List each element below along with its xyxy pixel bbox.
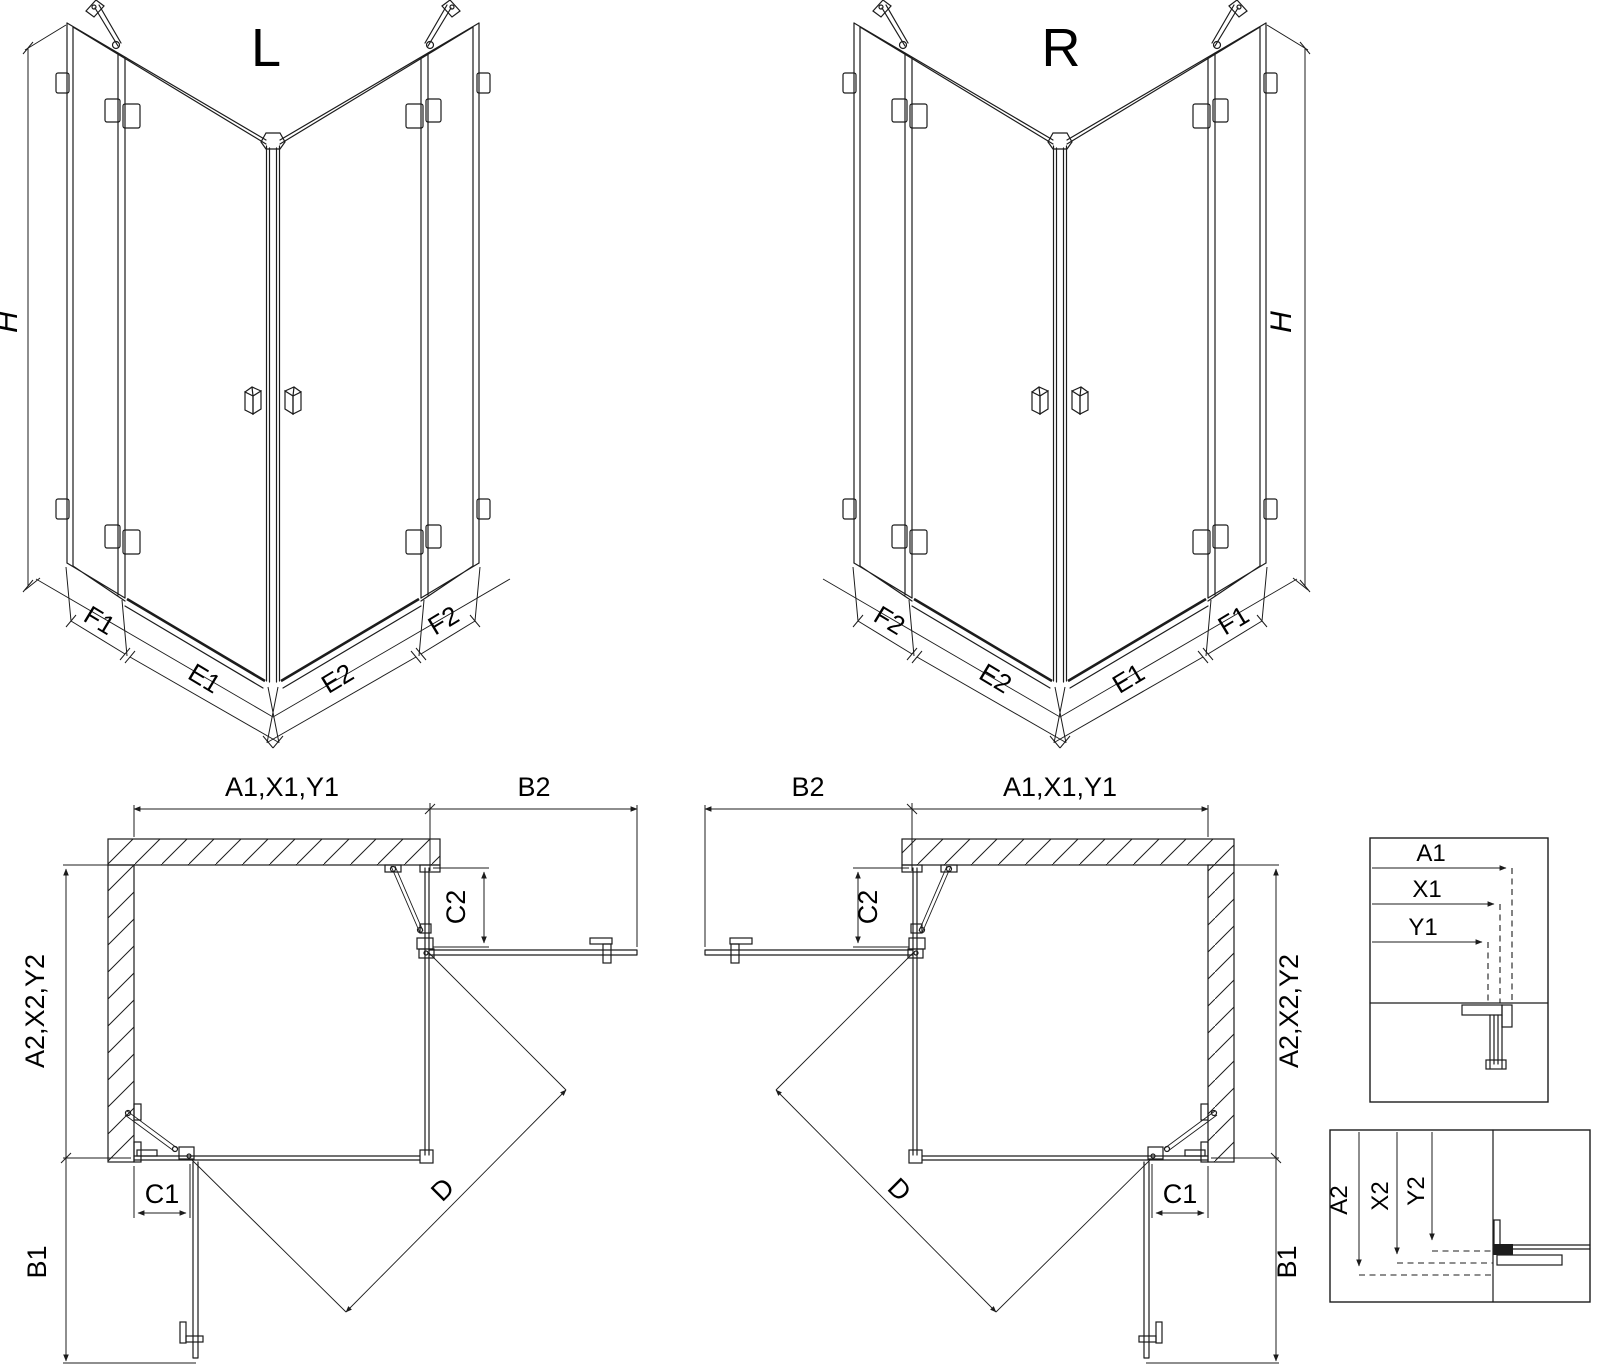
wall-side-left-plan xyxy=(108,865,134,1162)
view-3d-left: L H F1 E1 E2 F2 xyxy=(0,0,510,748)
wall-top-left-plan xyxy=(108,839,440,865)
detail-dim-x2: X2 xyxy=(1367,1181,1394,1210)
view-r-title: R xyxy=(1042,18,1081,78)
plan-r-dim-top: A1,X1,Y1 xyxy=(1003,772,1117,802)
plan-l-dim-side: A2,X2,Y2 xyxy=(20,954,50,1068)
shower-enclosure-diagram: L H F1 E1 E2 F2 R H F2 E2 E1 F1 A1,X1,Y1… xyxy=(0,0,1600,1371)
technical-drawing-page: L H F1 E1 E2 F2 R H F2 E2 E1 F1 A1,X1,Y1… xyxy=(0,0,1600,1371)
view-l-dim-e1: E1 xyxy=(183,657,226,699)
view-r-dim-height: H xyxy=(1265,311,1298,333)
plan-l-dim-c1: C1 xyxy=(145,1179,180,1209)
detail-dim-x1: X1 xyxy=(1412,876,1441,903)
view-3d-right: R H F2 E2 E1 F1 xyxy=(823,0,1310,748)
view-l-dim-f1: F1 xyxy=(79,600,120,641)
plan-r-dim-c2: C2 xyxy=(853,890,883,925)
plan-r-dim-b1: B1 xyxy=(1272,1245,1302,1278)
plan-l-dim-b1: B1 xyxy=(22,1245,52,1278)
view-r-dim-e1: E1 xyxy=(1107,657,1150,699)
plan-view-left: A1,X1,Y1 B2 A2,X2,Y2 C2 C1 B1 D xyxy=(20,772,637,1363)
view-r-dim-f1: F1 xyxy=(1213,600,1254,641)
plan-geometry-left xyxy=(61,803,637,1363)
view-l-dim-f2: F2 xyxy=(423,600,464,641)
detail-dim-a1: A1 xyxy=(1416,840,1445,867)
view-r-dim-f2: F2 xyxy=(869,600,910,641)
plan-view-right: B2 A1,X1,Y1 A2,X2,Y2 C2 C1 B1 D xyxy=(705,772,1304,1363)
plan-l-dim-c2: C2 xyxy=(441,890,471,925)
wall-side-right-plan xyxy=(1208,865,1234,1162)
view-l-dim-height: H xyxy=(0,311,24,333)
wall-top-right-plan xyxy=(902,839,1234,865)
detail-box-heights: A2 X2 Y2 xyxy=(1326,1130,1590,1302)
detail-dim-a2: A2 xyxy=(1326,1185,1353,1214)
plan-r-dim-b2: B2 xyxy=(791,772,824,802)
detail-widths-frame xyxy=(1370,838,1548,1102)
plan-l-dim-top: A1,X1,Y1 xyxy=(225,772,339,802)
detail-dim-y2: Y2 xyxy=(1403,1176,1430,1205)
detail-dim-y1: Y1 xyxy=(1408,914,1437,941)
detail-heights-frame xyxy=(1330,1130,1590,1302)
plan-r-dim-side: A2,X2,Y2 xyxy=(1274,954,1304,1068)
view-l-title: L xyxy=(251,18,281,78)
plan-r-dim-c1: C1 xyxy=(1163,1179,1198,1209)
detail-box-widths: A1 X1 Y1 xyxy=(1370,838,1548,1102)
plan-l-dim-b2: B2 xyxy=(517,772,550,802)
plan-geometry-right xyxy=(705,803,1281,1363)
